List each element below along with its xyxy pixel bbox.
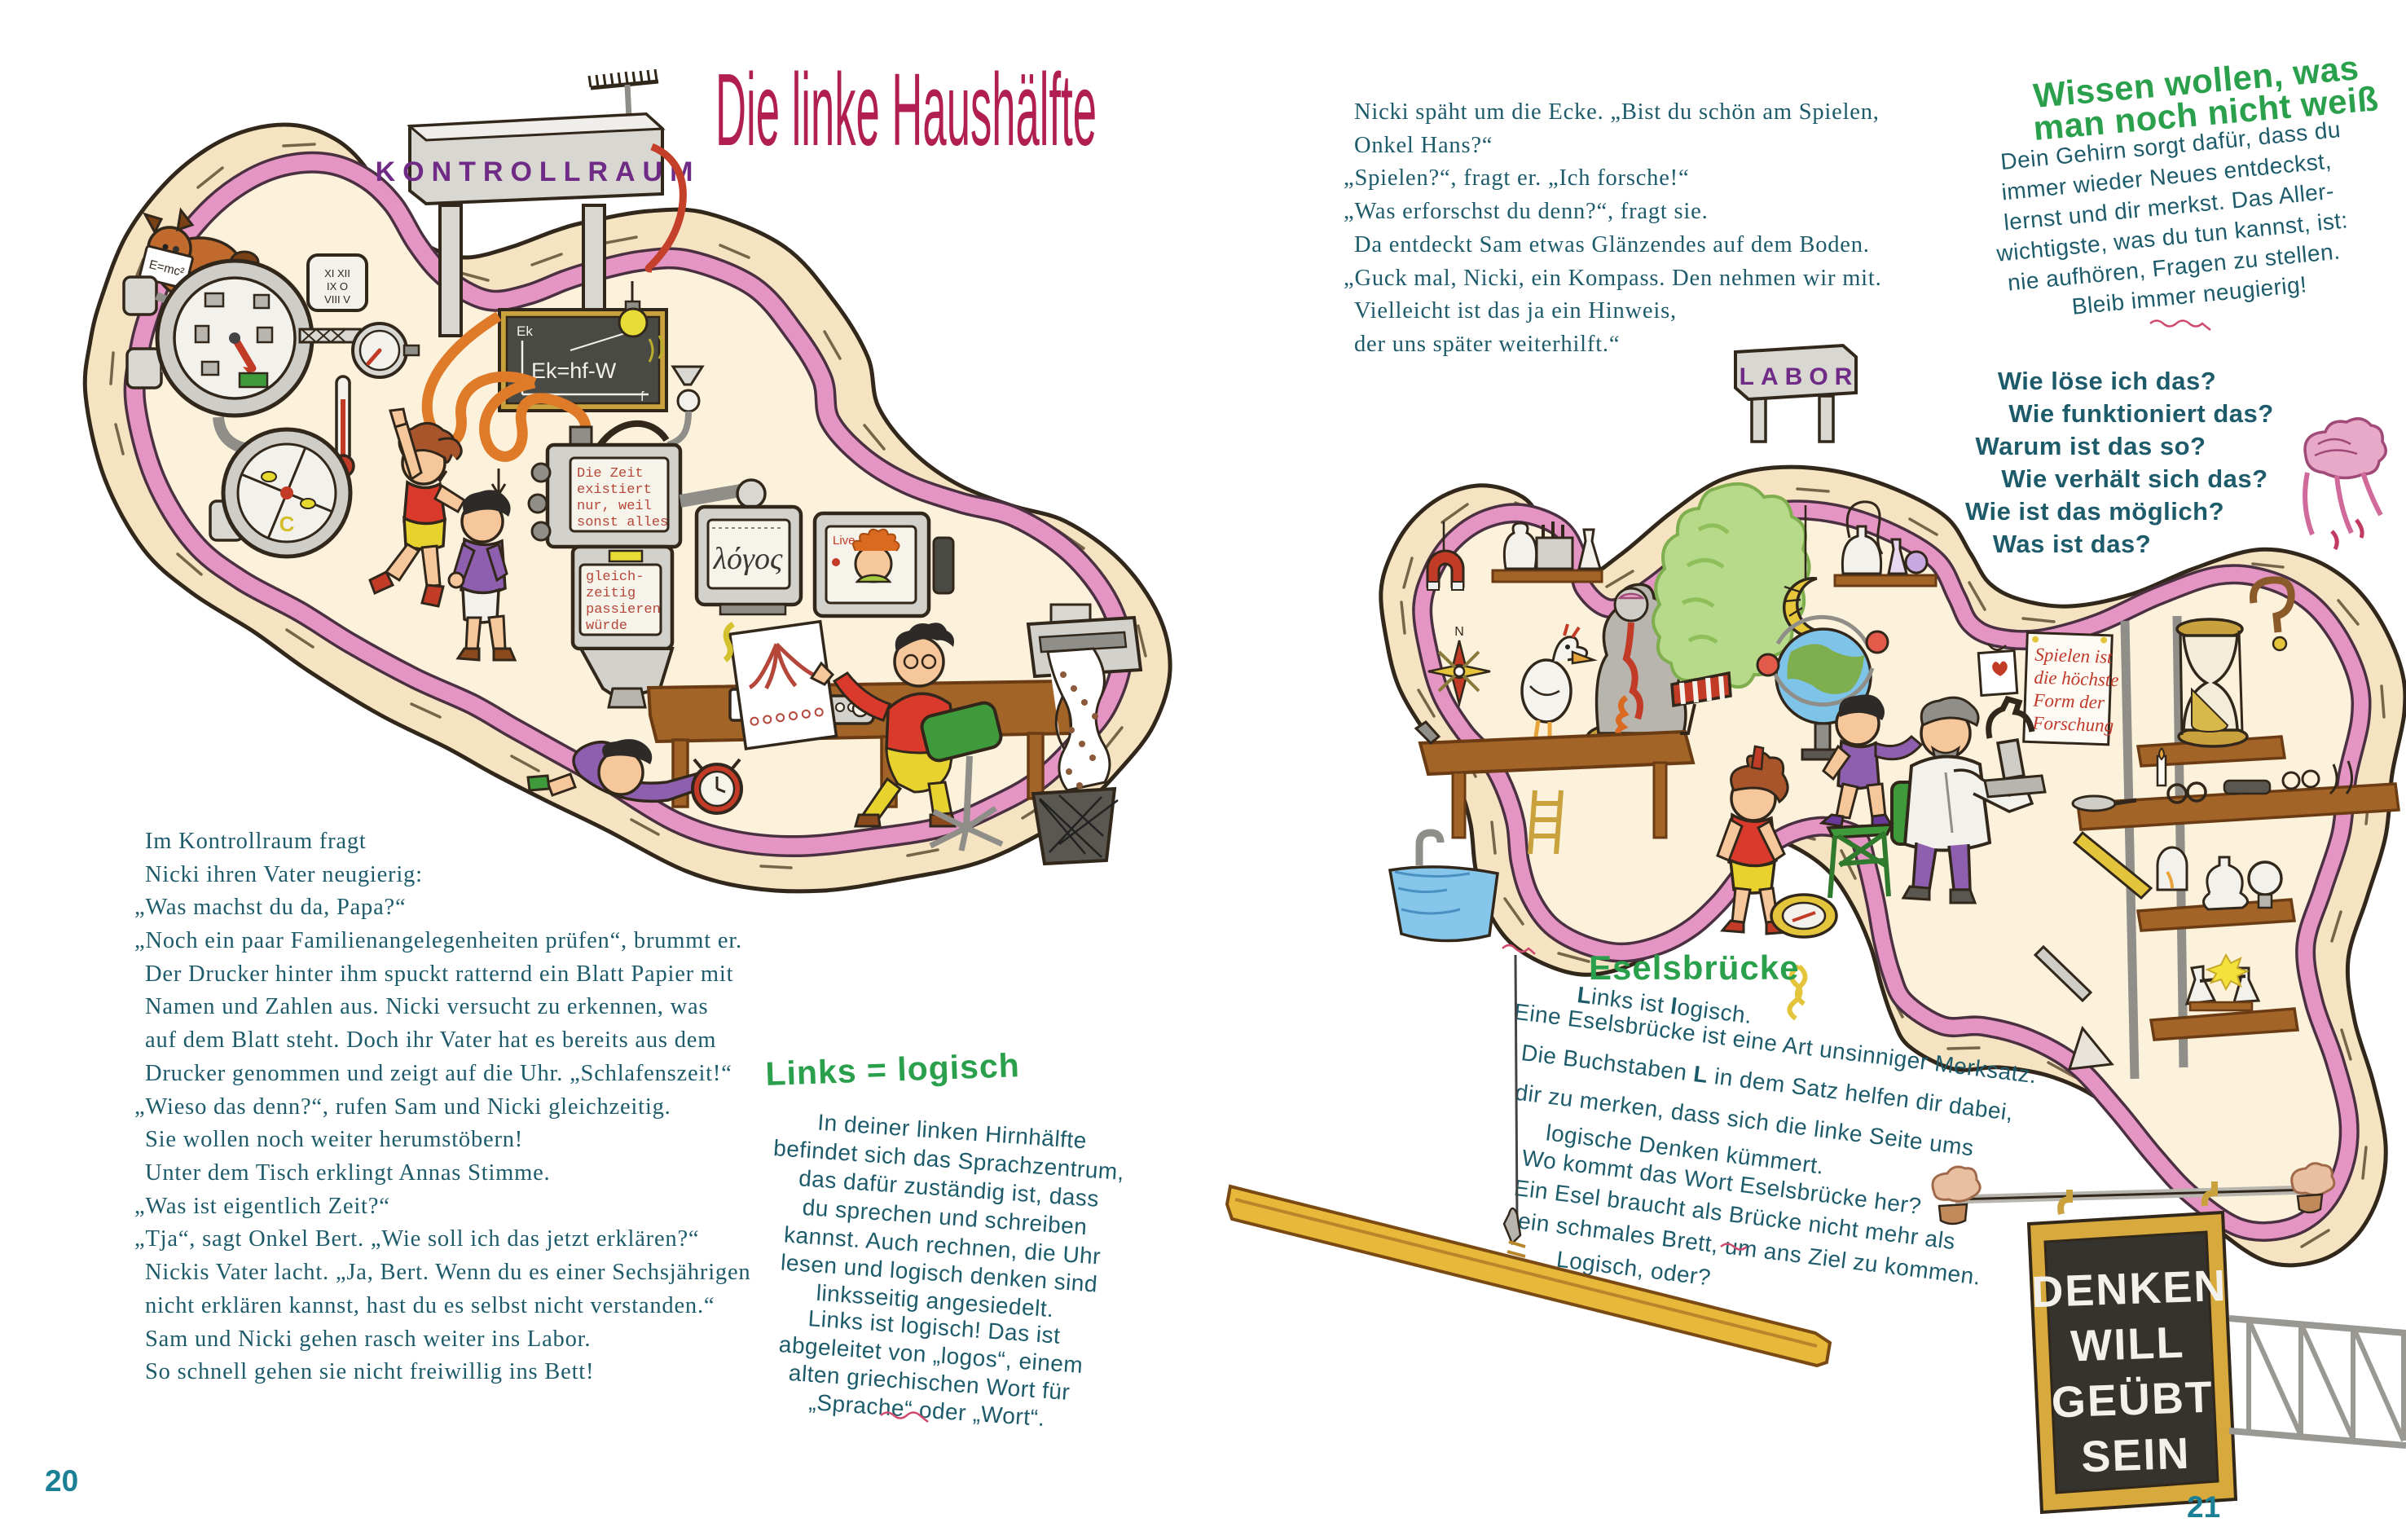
svg-text:auf dem Blatt steht. Doch ihr: auf dem Blatt steht. Doch ihr Vater hat …: [145, 1027, 716, 1053]
svg-text:die höchste: die höchste: [2034, 667, 2119, 691]
svg-text:sonst alles: sonst alles: [577, 515, 668, 530]
svg-text:21: 21: [2187, 1490, 2220, 1524]
svg-text:Drucker genommen und zeigt auf: Drucker genommen und zeigt auf die Uhr. …: [145, 1061, 732, 1086]
svg-text:C: C: [279, 512, 295, 536]
svg-text:Sie wollen noch weiter herumst: Sie wollen noch weiter herumstöbern!: [145, 1127, 523, 1152]
svg-text:Ek=hf-W: Ek=hf-W: [531, 359, 617, 383]
svg-text:f: f: [640, 389, 644, 404]
svg-text:Live: Live: [833, 534, 856, 548]
svg-text:Im Kontrollraum fragt: Im Kontrollraum fragt: [145, 829, 367, 854]
svg-text:„Was ist eigentlich Zeit?“: „Was ist eigentlich Zeit?“: [134, 1194, 390, 1219]
svg-text:„Guck mal, Nicki, ein Kompass.: „Guck mal, Nicki, ein Kompass. Den nehme…: [1344, 266, 1882, 291]
svg-text:KONTROLLRAUM: KONTROLLRAUM: [376, 156, 701, 187]
svg-text:Da entdeckt Sam etwas Glänzend: Da entdeckt Sam etwas Glänzendes auf dem…: [1354, 232, 1870, 257]
svg-text:würde: würde: [586, 618, 627, 634]
svg-text:Eselsbrücke: Eselsbrücke: [1589, 948, 1800, 987]
svg-text:„Was erforschst du denn?“, fra: „Was erforschst du denn?“, fragt sie.: [1344, 199, 1709, 224]
svg-text:Die Zeit: Die Zeit: [577, 466, 644, 482]
svg-text:N: N: [1454, 625, 1464, 639]
svg-text:SEIN: SEIN: [2080, 1429, 2191, 1482]
svg-text:Nicki späht um die Ecke. „Bist: Nicki späht um die Ecke. „Bist du schön …: [1354, 99, 1880, 125]
svg-text:GEÜBT: GEÜBT: [2051, 1373, 2215, 1428]
svg-text:nur, weil: nur, weil: [577, 499, 652, 514]
svg-text:passieren: passieren: [586, 602, 661, 618]
svg-text:Namen und Zahlen aus. Nicki ve: Namen und Zahlen aus. Nicki versucht zu …: [145, 994, 708, 1019]
svg-text:So schnell gehen sie nicht fre: So schnell gehen sie nicht freiwillig in…: [145, 1359, 594, 1384]
svg-text:„Was machst du da, Papa?“: „Was machst du da, Papa?“: [134, 895, 406, 920]
svg-text:Forschung: Forschung: [2031, 713, 2113, 736]
svg-text:zeitig: zeitig: [586, 586, 636, 601]
svg-text:λόγος: λόγος: [713, 542, 783, 576]
svg-text:Sam und Nicki gehen rasch weit: Sam und Nicki gehen rasch weiter ins Lab…: [145, 1327, 591, 1352]
svg-text:DENKEN: DENKEN: [2030, 1261, 2228, 1317]
svg-text:Die linke Haushälfte: Die linke Haushälfte: [715, 52, 1097, 167]
svg-text:nicht erklären kannst, hast du: nicht erklären kannst, hast du es selbst…: [145, 1293, 715, 1318]
svg-text:„Wieso das denn?“, rufen Sam u: „Wieso das denn?“, rufen Sam und Nicki g…: [134, 1094, 671, 1120]
svg-text:Ek: Ek: [517, 323, 533, 339]
svg-text:WILL: WILL: [2070, 1318, 2185, 1371]
svg-text:LABOR: LABOR: [1740, 363, 1859, 390]
svg-text:Was ist das?: Was ist das?: [1993, 530, 2151, 558]
svg-text:Form der: Form der: [2032, 690, 2105, 713]
svg-text:Nickis Vater lacht. „Ja, Bert.: Nickis Vater lacht. „Ja, Bert. Wenn du e…: [145, 1260, 751, 1285]
svg-text:„Tja“, sagt Onkel Bert. „Wie s: „Tja“, sagt Onkel Bert. „Wie soll ich da…: [134, 1226, 699, 1252]
svg-text:IX O: IX O: [327, 280, 348, 293]
svg-text:XI XII: XI XII: [324, 267, 350, 279]
svg-text:„Spielen?“, fragt er. „Ich for: „Spielen?“, fragt er. „Ich forsche!“: [1344, 165, 1689, 191]
svg-text:Der Drucker hinter ihm spuckt: Der Drucker hinter ihm spuckt ratternd e…: [145, 961, 733, 987]
svg-text:Wie löse ich das?: Wie löse ich das?: [1998, 367, 2216, 395]
svg-text:Unter dem Tisch erklingt Annas: Unter dem Tisch erklingt Annas Stimme.: [145, 1160, 550, 1186]
svg-text:Wie verhält sich das?: Wie verhält sich das?: [2001, 464, 2267, 493]
svg-text:Warum ist das so?: Warum ist das so?: [1976, 432, 2206, 460]
svg-text:gleich-: gleich-: [586, 570, 644, 585]
svg-text:Onkel Hans?“: Onkel Hans?“: [1354, 133, 1493, 158]
svg-text:Nicki ihren Vater neugierig:: Nicki ihren Vater neugierig:: [145, 862, 423, 887]
svg-text:Wie ist das möglich?: Wie ist das möglich?: [1965, 497, 2224, 526]
svg-text:Spielen ist: Spielen ist: [2034, 645, 2113, 667]
svg-text:existiert: existiert: [577, 482, 652, 498]
svg-text:Wie funktioniert das?: Wie funktioniert das?: [2008, 399, 2273, 428]
svg-text:der uns später weiterhilft.“: der uns später weiterhilft.“: [1354, 332, 1620, 357]
svg-text:VIII V: VIII V: [324, 293, 350, 306]
svg-text:20: 20: [45, 1464, 78, 1498]
svg-text:Vielleicht ist das ja ein Hinw: Vielleicht ist das ja ein Hinweis,: [1354, 298, 1677, 323]
svg-text:„Noch ein paar Familienangeleg: „Noch ein paar Familienangelegenheiten p…: [134, 928, 742, 953]
